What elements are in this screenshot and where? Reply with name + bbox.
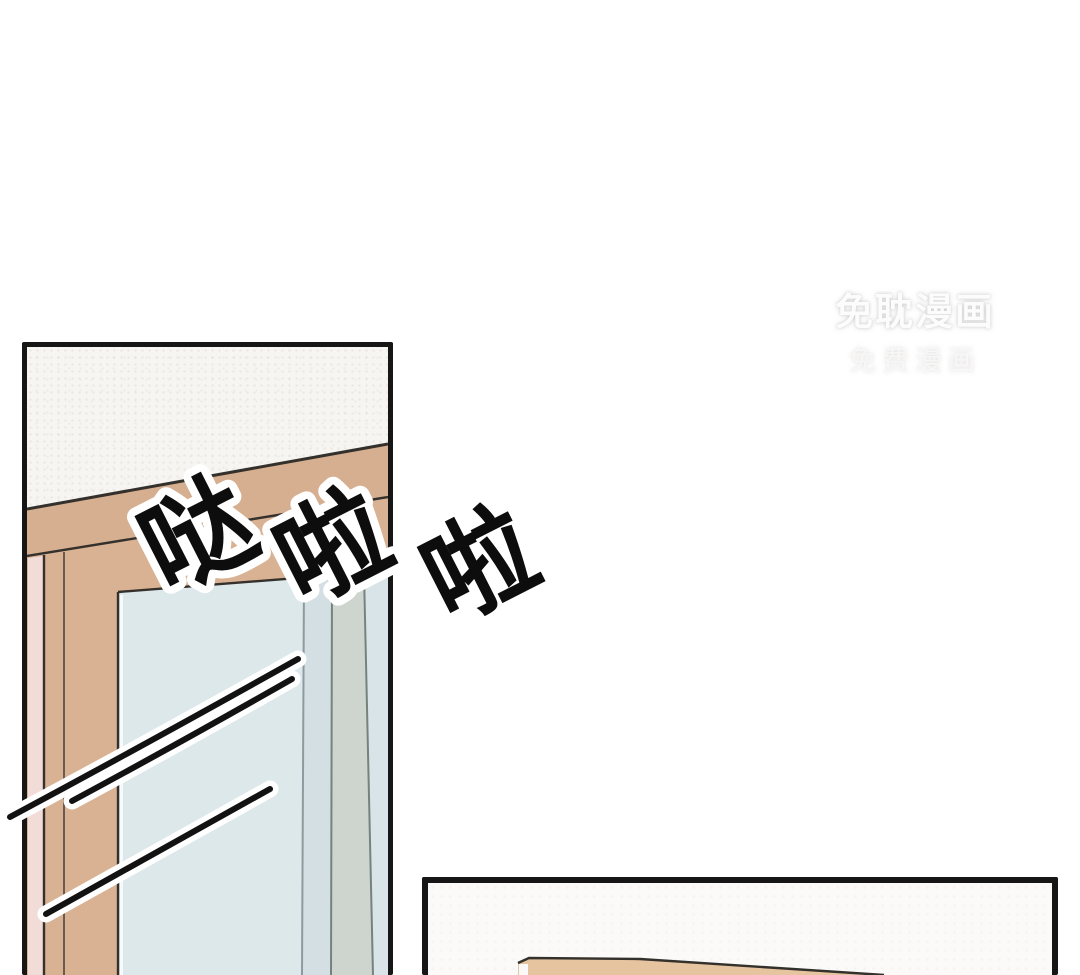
panel-main-window [22,342,393,975]
pane-line-2 [331,575,332,975]
watermark-line-1: 免耽漫画 [810,281,1020,336]
watermark: 免耽漫画 免费漫画 [810,281,1020,378]
sfx-char-3: 啦 [404,486,557,646]
glass-reflection-strip [301,575,331,975]
panel-bottom [422,877,1058,975]
panel-bottom-art [428,883,1052,975]
desk-edge-highlight [519,964,528,975]
comic-page: 哒 啦 啦 免耽漫画 免费漫画 [0,0,1080,975]
wall-edge-pink [28,556,43,975]
watermark-line-2: 免费漫画 [810,339,1020,378]
window-illustration [27,347,388,975]
